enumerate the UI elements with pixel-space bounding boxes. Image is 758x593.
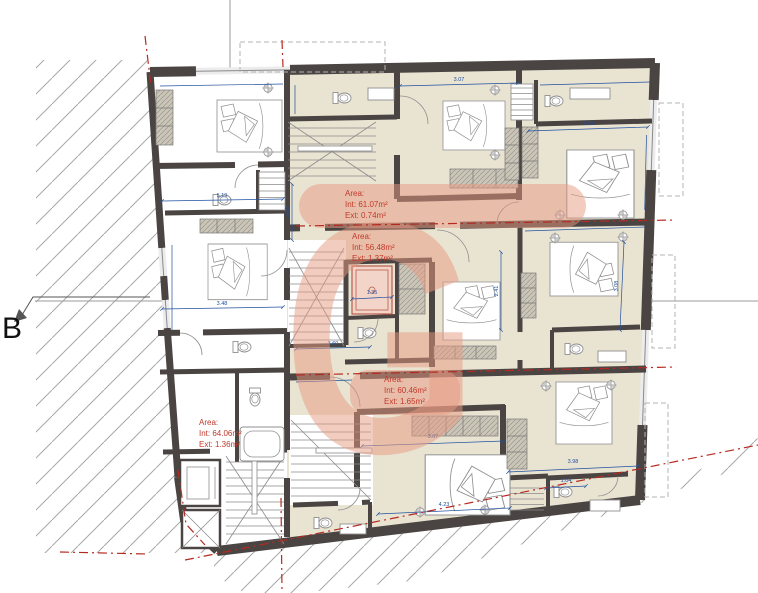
area-label: Area: xyxy=(345,189,364,198)
wardrobe xyxy=(507,419,527,469)
floor-plan-canvas: 3.07 4.29 5.19 3.48 2.00 3.60 1.35 2.41 … xyxy=(0,0,758,593)
dim-label: 5.19 xyxy=(217,193,228,199)
area-ext-value: Ext: 1.36m² xyxy=(199,440,240,449)
balcony-outline xyxy=(645,403,668,497)
wardrobe xyxy=(200,219,253,233)
area-ext-value: Ext: 1.37m² xyxy=(352,254,393,263)
bed-bottom-right xyxy=(556,382,612,444)
counter xyxy=(598,351,626,362)
dim-label: 3.07 xyxy=(454,77,465,83)
area-ext-value: Ext: 1.65m² xyxy=(384,397,425,406)
area-label: Area: xyxy=(384,375,403,384)
dim-label: 2.41 xyxy=(494,286,500,297)
floor-plan-page: 3.07 4.29 5.19 3.48 2.00 3.60 1.35 2.41 … xyxy=(0,0,758,593)
balcony-outline xyxy=(659,103,683,196)
bathtub xyxy=(240,427,284,461)
toilet-icon xyxy=(554,487,572,498)
area-int-value: Int: 64.06m² xyxy=(199,429,242,438)
area-label: Area: xyxy=(199,418,218,427)
counter xyxy=(368,88,394,100)
dim-label: 3.48 xyxy=(217,301,228,307)
bed-top-left xyxy=(217,100,282,152)
void-cross-box xyxy=(182,510,220,548)
area-int-value: Int: 61.07m² xyxy=(345,200,388,209)
toilet-icon xyxy=(545,96,563,107)
duct-shaft-top-right xyxy=(511,84,533,120)
toilet-icon xyxy=(565,344,583,355)
toilet-icon xyxy=(333,93,351,104)
wardrobe xyxy=(521,273,536,318)
counter xyxy=(570,88,610,99)
bed-mid-right xyxy=(550,242,618,296)
watermark-letter: G xyxy=(283,155,478,523)
counter xyxy=(340,524,366,534)
elevator-shaft xyxy=(180,460,220,506)
area-label: Area: xyxy=(352,232,371,241)
duct-shaft-left xyxy=(259,172,285,210)
area-int-value: Int: 60.46m² xyxy=(384,386,427,395)
section-marker-label: B xyxy=(2,312,22,345)
toilet-icon xyxy=(233,342,251,353)
wardrobe xyxy=(156,90,173,145)
bed-top-center xyxy=(443,101,505,150)
dim-label: 3.08 xyxy=(614,281,620,292)
dim-label: 3.98 xyxy=(568,459,579,465)
wardrobe xyxy=(522,127,538,178)
area-int-value: Int: 56.48m² xyxy=(352,243,395,252)
toilet-icon xyxy=(250,388,261,406)
dim-label: 4.29 xyxy=(583,121,594,127)
area-ext-value: Ext: 0.74m² xyxy=(345,211,386,220)
wardrobe xyxy=(505,128,519,180)
bed-left-middle xyxy=(208,244,267,300)
counter xyxy=(590,500,620,511)
